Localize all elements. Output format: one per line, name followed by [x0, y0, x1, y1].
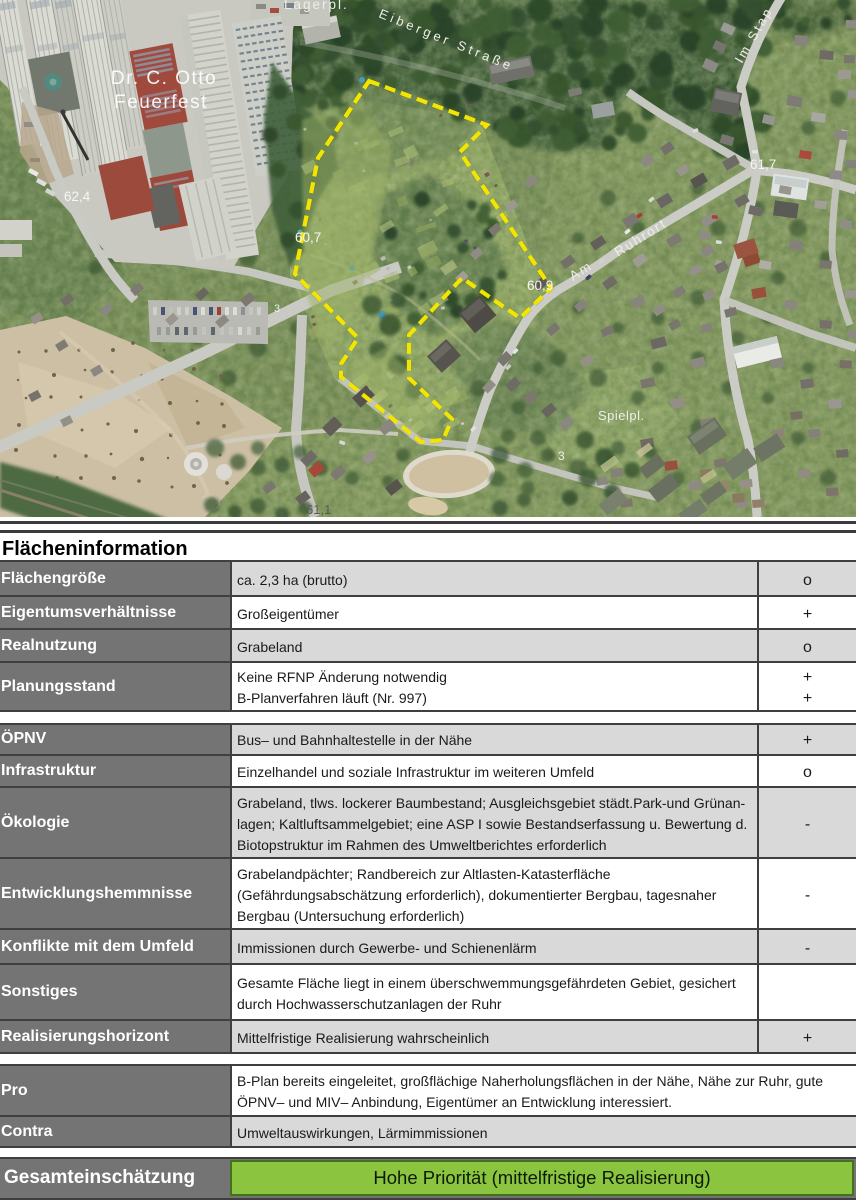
svg-text:61,1: 61,1	[306, 502, 331, 517]
svg-text:3: 3	[274, 303, 280, 315]
svg-text:Spielpl.: Spielpl.	[598, 408, 645, 423]
svg-text:62,4: 62,4	[64, 189, 91, 204]
svg-text:Feuerfest: Feuerfest	[114, 92, 208, 113]
svg-text:61,7: 61,7	[750, 157, 776, 172]
svg-text:Lagerpl.: Lagerpl.	[284, 0, 349, 12]
svg-text:Dr. C. Otto: Dr. C. Otto	[111, 68, 217, 89]
svg-text:60,9: 60,9	[527, 278, 553, 293]
svg-text:60,7: 60,7	[295, 230, 321, 245]
svg-text:3: 3	[558, 449, 565, 463]
